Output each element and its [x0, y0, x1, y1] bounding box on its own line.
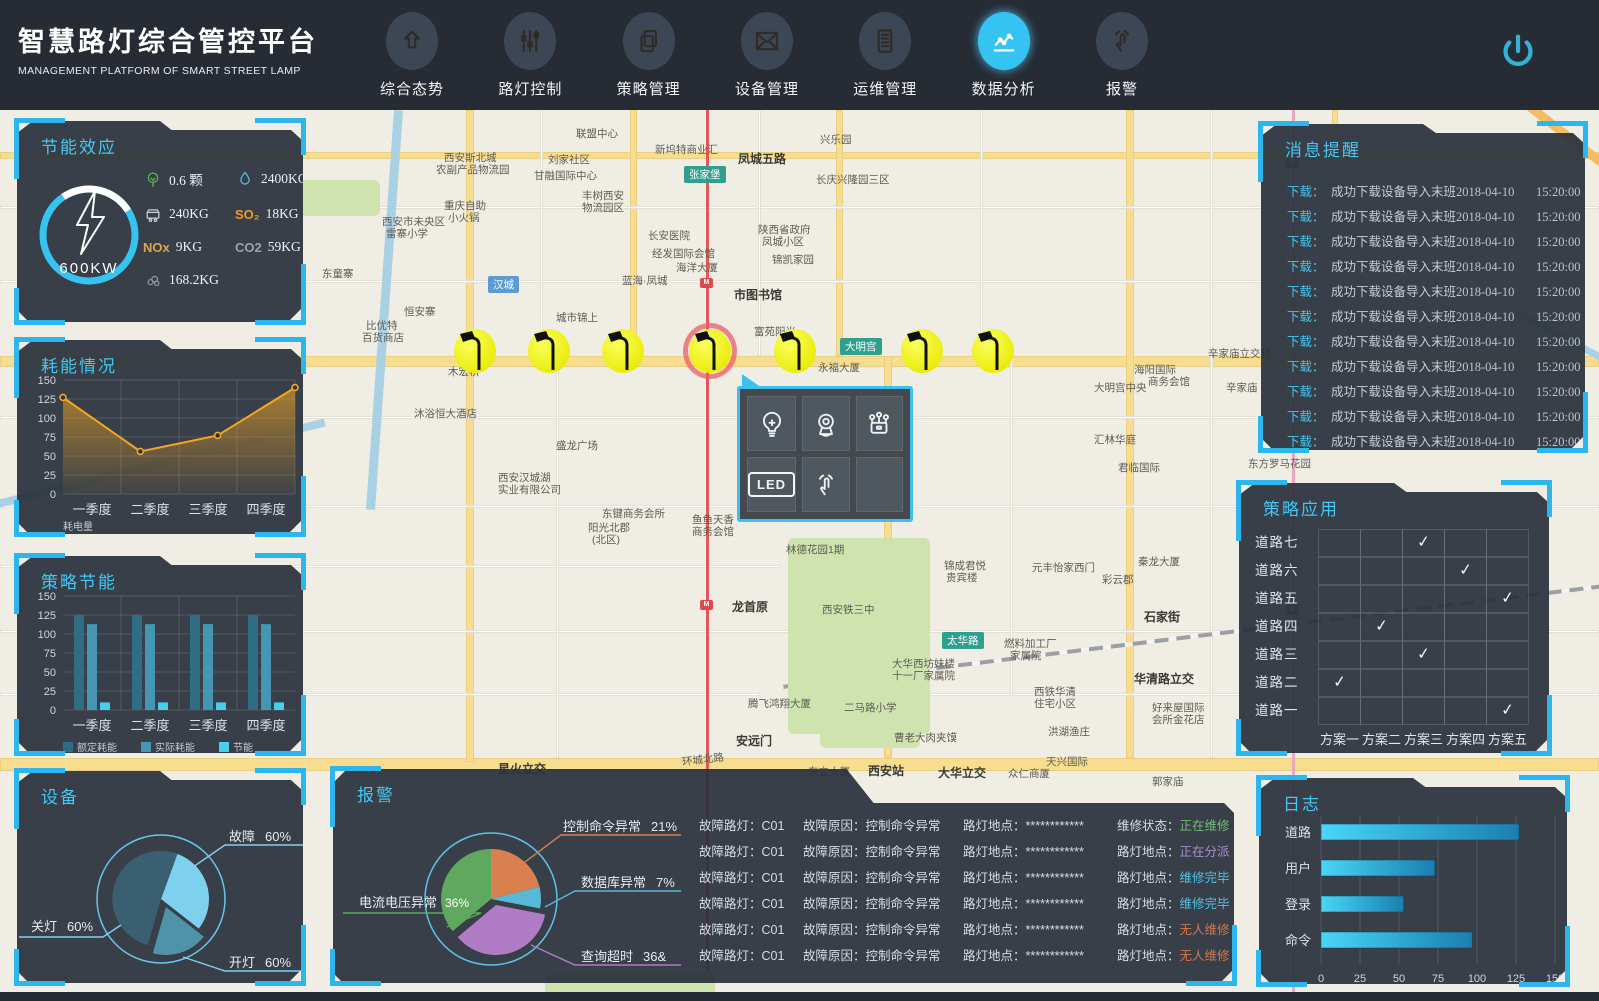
copy-icon — [623, 12, 675, 70]
svg-text:125: 125 — [1507, 973, 1525, 985]
map-road-badge: 太华路 — [942, 632, 984, 649]
strategy-cell[interactable] — [1486, 641, 1529, 669]
message-row: 下载： 成功下载设备导入末班 2018-04-10 15:20:00 — [1287, 305, 1575, 330]
street-lamp-icon — [971, 328, 1015, 374]
message-date: 2018-04-10 — [1456, 305, 1536, 330]
map-label: 君临国际 — [1118, 460, 1160, 475]
message-text: 成功下载设备导入末班 — [1331, 255, 1456, 280]
led-label: LED — [748, 472, 795, 497]
energy-stat: 240KG — [143, 204, 231, 224]
svg-text:50: 50 — [1393, 973, 1405, 985]
strategy-cell[interactable] — [1360, 585, 1403, 613]
alarm-row: 故障路灯：C01 故障原因：控制命令异常 路灯地点：************ 路… — [699, 865, 1226, 891]
panel-log: 日志 0255075100125150道路 用户 登录 命令 — [1256, 775, 1570, 987]
status-value: 无人维修 — [1180, 949, 1230, 963]
map-label: 彩云郡 — [1102, 572, 1134, 587]
lamp-location: 路灯地点：************ — [963, 813, 1117, 839]
map-label: 甘融国际中心 — [534, 168, 597, 183]
road-label: 道路四 — [1255, 613, 1319, 641]
message-text: 成功下载设备导入末班 — [1331, 230, 1456, 255]
alarm-row: 故障路灯：C01 故障原因：控制命令异常 路灯地点：************ 路… — [699, 891, 1226, 917]
strategy-cell[interactable] — [1444, 697, 1487, 725]
led-control-button[interactable]: LED — [747, 457, 796, 512]
svg-text:三季度: 三季度 — [188, 718, 227, 733]
app-header: 智慧路灯综合管控平台 MANAGEMENT PLATFORM OF SMART … — [0, 0, 1599, 110]
map-label: 龙首原 — [732, 598, 768, 615]
plan-label: 方案五 — [1486, 725, 1529, 753]
map-label: 商务会馆 — [692, 524, 734, 539]
message-date: 2018-04-10 — [1456, 430, 1536, 455]
stat-label: CO2 — [235, 240, 262, 255]
street-lamp-icon — [453, 328, 497, 374]
map-label: 蓝海·凤城 — [622, 273, 668, 288]
nav-item-chart-line[interactable]: 数据分析 — [954, 12, 1054, 99]
message-list: 下载： 成功下载设备导入末班 2018-04-10 15:20:00下载： 成功… — [1287, 180, 1575, 455]
road-label: 道路二 — [1255, 669, 1319, 697]
panel-title: 策略节能 — [41, 568, 117, 593]
message-text: 成功下载设备导入末班 — [1331, 430, 1456, 455]
status-value: 维修完毕 — [1180, 871, 1230, 885]
strategy-row: 道路五✓ — [1255, 585, 1529, 613]
panel-alarm: 报警 控制命令异常21% 数据库异常7% 查询超时36& 电流电压异常 36% … — [330, 766, 1237, 986]
sensor-icon — [864, 409, 894, 439]
panel-messages: 消息提醒 下载： 成功下载设备导入末班 2018-04-10 15:20:00下… — [1258, 121, 1588, 453]
fault-lamp: 故障路灯：C01 — [699, 865, 803, 891]
map-park — [300, 180, 380, 216]
tree-icon — [143, 169, 163, 189]
svg-text:100: 100 — [1468, 973, 1486, 985]
street-lamp-icon — [773, 328, 817, 374]
svg-text:25: 25 — [1354, 973, 1366, 985]
message-date: 2018-04-10 — [1456, 280, 1536, 305]
map-label: 长安医院 — [648, 228, 690, 243]
stat-value: 9KG — [176, 239, 202, 255]
strategy-cell[interactable]: ✓ — [1402, 641, 1445, 669]
map-label: 腾飞鸿翔大厦 — [748, 696, 811, 711]
nav-item-mail[interactable]: 设备管理 — [717, 12, 817, 99]
status-value: 无人维修 — [1180, 923, 1230, 937]
svg-text:125: 125 — [38, 610, 56, 622]
bulb-button[interactable] — [747, 396, 796, 451]
message-row: 下载： 成功下载设备导入末班 2018-04-10 15:20:00 — [1287, 280, 1575, 305]
metro-station-icon: M — [700, 600, 713, 610]
road-label: 道路七 — [1255, 529, 1319, 557]
map-road — [630, 110, 637, 356]
message-text: 成功下载设备导入末班 — [1331, 330, 1456, 355]
map-label: 实业有限公司 — [498, 482, 561, 497]
svg-text:登录: 登录 — [1285, 897, 1311, 912]
touch-button[interactable] — [802, 457, 850, 512]
message-text: 成功下载设备导入末班 — [1331, 205, 1456, 230]
check-icon: ✓ — [1457, 557, 1473, 584]
nav-item-arrow-up[interactable]: 综合态势 — [362, 12, 462, 99]
fault-reason: 故障原因：控制命令异常 — [803, 839, 963, 865]
street-lamp-marker-selected[interactable] — [688, 328, 732, 374]
repair-status: 维修状态：正在维修 — [1117, 813, 1230, 839]
message-row: 下载： 成功下载设备导入末班 2018-04-10 15:20:00 — [1287, 330, 1575, 355]
strategy-cell[interactable] — [1402, 669, 1445, 697]
stat-label: NOx — [143, 240, 170, 255]
sliders-icon — [515, 26, 545, 56]
stat-value: 18KG — [266, 206, 299, 222]
svg-text:命令: 命令 — [1285, 933, 1311, 948]
svg-text:100: 100 — [38, 413, 56, 425]
energy-stat: 168.2KG — [143, 270, 231, 290]
strategy-cell[interactable] — [1318, 697, 1361, 725]
lamp-location: 路灯地点：************ — [963, 891, 1117, 917]
map-label: 刘家社区 — [548, 152, 590, 167]
power-button[interactable] — [1495, 30, 1541, 76]
plan-label: 方案四 — [1444, 725, 1487, 753]
chart-line-icon — [978, 12, 1030, 70]
nav-label: 策略管理 — [599, 78, 699, 99]
svg-text:额定耗能: 额定耗能 — [77, 741, 117, 754]
message-type: 下载： — [1287, 255, 1331, 280]
map-label: 汇林华庭 — [1094, 432, 1136, 447]
map-road — [366, 110, 403, 510]
map-label: 海洋大厦 — [676, 260, 718, 275]
message-type: 下载： — [1287, 330, 1331, 355]
strategy-cell[interactable] — [1318, 585, 1361, 613]
strategy-cell[interactable] — [1486, 529, 1529, 557]
map-label: 洪湖渔庄 — [1048, 724, 1090, 739]
street-lamp-icon — [900, 328, 944, 374]
message-date: 2018-04-10 — [1456, 180, 1536, 205]
mail-icon — [741, 12, 793, 70]
map-label: 兴乐园 — [820, 132, 852, 147]
map-label: 新坞特商业汇 — [655, 142, 718, 157]
app-subtitle: MANAGEMENT PLATFORM OF SMART STREET LAMP — [18, 65, 318, 77]
map-road — [1210, 110, 1213, 758]
nav-label: 路灯控制 — [480, 78, 580, 99]
svg-text:数据库异常7%: 数据库异常7% — [581, 875, 675, 890]
log-bar-chart: 0255075100125150道路 用户 登录 命令 — [1259, 804, 1573, 995]
strategy-cell[interactable] — [1402, 585, 1445, 613]
message-type: 下载： — [1287, 380, 1331, 405]
strategy-cell[interactable] — [1402, 697, 1445, 725]
map-label: 永福大厦 — [818, 360, 860, 375]
strategy-cell[interactable]: ✓ — [1360, 613, 1403, 641]
street-lamp-marker[interactable] — [900, 328, 944, 374]
alarm-row: 故障路灯：C01 故障原因：控制命令异常 路灯地点：************ 路… — [699, 943, 1226, 969]
svg-text:四季度: 四季度 — [246, 718, 285, 733]
svg-text:四季度: 四季度 — [246, 502, 285, 517]
map-label: 十一厂家属院 — [892, 668, 955, 683]
svg-text:电流电压异常: 电流电压异常 — [359, 895, 437, 910]
message-type: 下载： — [1287, 180, 1331, 205]
fault-lamp: 故障路灯：C01 — [699, 839, 803, 865]
stat-value: 168.2KG — [169, 272, 219, 288]
nav-item-document[interactable]: 运维管理 — [835, 12, 935, 99]
nav-label: 综合态势 — [362, 78, 462, 99]
strategy-cell[interactable] — [1486, 613, 1529, 641]
street-lamp-icon — [601, 328, 645, 374]
svg-text:50: 50 — [44, 667, 56, 679]
svg-text:125: 125 — [38, 394, 56, 406]
message-type: 下载： — [1287, 305, 1331, 330]
road-label: 道路一 — [1255, 697, 1319, 725]
alarm-row: 故障路灯：C01 故障原因：控制命令异常 路灯地点：************ 路… — [699, 839, 1226, 865]
panel-strategy-saving: 策略节能 0255075100125150一季度二季度三季度四季度额定耗能实际耗… — [14, 553, 306, 756]
svg-text:0: 0 — [1318, 973, 1324, 985]
camera-button[interactable] — [802, 396, 850, 451]
strategy-cell[interactable] — [1402, 613, 1445, 641]
energy-stats: 0.6 颗2400KG240KGSO₂18KGNOx9KGCO259KG168.… — [143, 169, 297, 290]
map-label: 凤城五路 — [738, 150, 786, 167]
plan-label: 方案二 — [1360, 725, 1403, 753]
message-date: 2018-04-10 — [1456, 230, 1536, 255]
main-nav: 综合态势路灯控制策略管理设备管理运维管理数据分析报警 — [362, 12, 1172, 99]
svg-text:150: 150 — [1546, 973, 1564, 985]
svg-text:故障60%: 故障60% — [229, 829, 291, 844]
svg-text:耗电量: 耗电量 — [63, 520, 93, 533]
strategy-row: 道路一✓ — [1255, 697, 1529, 725]
map-label: 东童寨 — [322, 266, 354, 281]
energy-stat: SO₂18KG — [235, 204, 313, 224]
fault-lamp: 故障路灯：C01 — [699, 813, 803, 839]
map-label: 联盟中心 — [576, 126, 618, 141]
svg-text:查询超时36&: 查询超时36& — [581, 949, 666, 964]
strategy-cell[interactable] — [1318, 529, 1361, 557]
strategy-row: 道路二✓ — [1255, 669, 1529, 697]
nav-label: 数据分析 — [954, 78, 1054, 99]
chart-line-icon — [989, 26, 1019, 56]
fault-reason: 故障原因：控制命令异常 — [803, 917, 963, 943]
svg-text:50: 50 — [44, 451, 56, 463]
lightning-icon — [77, 191, 104, 254]
strategy-cell[interactable] — [1486, 669, 1529, 697]
strategy-row: 道路三✓ — [1255, 641, 1529, 669]
message-type: 下载： — [1287, 205, 1331, 230]
svg-text:75: 75 — [44, 648, 56, 660]
svg-text:25: 25 — [44, 686, 56, 698]
map-road-badge: 张家堡 — [684, 166, 726, 183]
map-label: 二马路小学 — [844, 700, 897, 715]
strategy-cell[interactable]: ✓ — [1402, 529, 1445, 557]
svg-text:道路: 道路 — [1285, 825, 1311, 840]
map-road-badge: 汉城 — [488, 276, 519, 293]
check-icon: ✓ — [1499, 585, 1515, 612]
map-label: 东方罗马花园 — [1248, 456, 1311, 471]
stat-value: 0.6 颗 — [169, 169, 203, 189]
map-label: 西安铁三中 — [822, 602, 875, 617]
message-date: 2018-04-10 — [1456, 355, 1536, 380]
strategy-cell[interactable] — [1444, 585, 1487, 613]
strategy-cell[interactable] — [1486, 557, 1529, 585]
panel-title: 耗能情况 — [41, 352, 117, 377]
fault-lamp: 故障路灯：C01 — [699, 917, 803, 943]
map-label: 经发国际会馆 — [652, 246, 715, 261]
svg-text:二季度: 二季度 — [130, 502, 169, 517]
arrow-up-icon — [397, 26, 427, 56]
check-icon: ✓ — [1415, 641, 1431, 668]
consumption-line-chart: 0255075100125150一季度二季度三季度四季度耗电量 — [17, 366, 309, 543]
lamp-location: 路灯地点：************ — [963, 943, 1117, 969]
street-lamp-marker[interactable] — [773, 328, 817, 374]
message-text: 成功下载设备导入末班 — [1331, 355, 1456, 380]
lamp-popup: LED — [737, 386, 913, 522]
energy-stat: NOx9KG — [143, 239, 231, 255]
strategy-cell[interactable] — [1318, 557, 1361, 585]
arrow-up-icon — [386, 12, 438, 70]
panel-title: 策略应用 — [1263, 495, 1339, 520]
touch-icon — [1107, 26, 1137, 56]
strategy-cell[interactable] — [1444, 529, 1487, 557]
strategy-cell[interactable] — [1360, 641, 1403, 669]
check-icon: ✓ — [1415, 529, 1431, 556]
fault-reason: 故障原因：控制命令异常 — [803, 865, 963, 891]
plan-label: 方案三 — [1402, 725, 1445, 753]
fault-reason: 故障原因：控制命令异常 — [803, 943, 963, 969]
message-type: 下载： — [1287, 230, 1331, 255]
svg-text:100: 100 — [38, 629, 56, 641]
panel-consumption: 耗能情况 0255075100125150一季度二季度三季度四季度耗电量 — [14, 337, 306, 537]
nav-label: 运维管理 — [835, 78, 935, 99]
svg-text:控制命令异常21%: 控制命令异常21% — [563, 819, 677, 834]
message-row: 下载： 成功下载设备导入末班 2018-04-10 15:20:00 — [1287, 255, 1575, 280]
document-icon — [859, 12, 911, 70]
stat-value: 59KG — [268, 239, 301, 255]
alarm-row: 故障路灯：C01 故障原因：控制命令异常 路灯地点：************ 路… — [699, 917, 1226, 943]
nav-item-touch[interactable]: 报警 — [1072, 12, 1172, 99]
map-label: 农副产品物流园 — [436, 162, 510, 177]
map-label: 小火锅 — [448, 210, 480, 225]
repair-status: 路灯地点：无人维修 — [1117, 943, 1230, 969]
message-row: 下载： 成功下载设备导入末班 2018-04-10 15:20:00 — [1287, 230, 1575, 255]
svg-text:二季度: 二季度 — [130, 718, 169, 733]
fault-lamp: 故障路灯：C01 — [699, 891, 803, 917]
alarm-pie-chart: 控制命令异常21% 数据库异常7% 查询超时36& 电流电压异常 36% — [341, 795, 701, 996]
street-lamp-marker[interactable] — [527, 328, 571, 374]
strategy-cell[interactable] — [1318, 613, 1361, 641]
strategy-cell[interactable] — [1402, 557, 1445, 585]
energy-stat: 2400KG — [235, 169, 313, 189]
panel-title: 设备 — [41, 783, 79, 808]
strategy-cell[interactable] — [1318, 641, 1361, 669]
street-lamp-marker[interactable] — [453, 328, 497, 374]
map-label: 长庆兴隆园三区 — [816, 172, 890, 187]
strategy-cell[interactable] — [1360, 529, 1403, 557]
map-road — [980, 110, 983, 356]
svg-text:25: 25 — [44, 470, 56, 482]
strategy-cell[interactable]: ✓ — [1444, 557, 1487, 585]
energy-gauge: 600KW — [21, 159, 161, 316]
map-label: 辛家庙 — [1226, 380, 1258, 395]
lamp-location: 路灯地点：************ — [963, 917, 1117, 943]
coal-cart-icon — [143, 204, 163, 224]
message-row: 下载： 成功下载设备导入末班 2018-04-10 15:20:00 — [1287, 430, 1575, 455]
message-row: 下载： 成功下载设备导入末班 2018-04-10 15:20:00 — [1287, 405, 1575, 430]
street-lamp-icon — [527, 328, 571, 374]
check-icon: ✓ — [1373, 613, 1389, 640]
svg-text:开灯60%: 开灯60% — [229, 955, 291, 970]
stat-value: 240KG — [169, 206, 209, 222]
strategy-saving-bar-chart: 0255075100125150一季度二季度三季度四季度额定耗能实际耗能节能 — [17, 582, 309, 763]
popup-pointer — [742, 374, 762, 388]
strategy-cell[interactable] — [1444, 641, 1487, 669]
repair-status: 路灯地点：维修完毕 — [1117, 891, 1230, 917]
power-icon — [1495, 30, 1541, 76]
svg-text:0: 0 — [50, 489, 56, 501]
message-text: 成功下载设备导入末班 — [1331, 180, 1456, 205]
strategy-row: 道路四✓ — [1255, 613, 1529, 641]
street-lamp-marker[interactable] — [971, 328, 1015, 374]
fault-reason: 故障原因：控制命令异常 — [803, 813, 963, 839]
panel-title: 报警 — [357, 781, 395, 806]
message-row: 下载： 成功下载设备导入末班 2018-04-10 15:20:00 — [1287, 380, 1575, 405]
map-label: 盛龙广场 — [556, 438, 598, 453]
strategy-cell[interactable]: ✓ — [1486, 585, 1529, 613]
svg-text:实际耗能: 实际耗能 — [155, 741, 195, 754]
nav-item-sliders[interactable]: 路灯控制 — [480, 12, 580, 99]
strategy-row: 道路六✓ — [1255, 557, 1529, 585]
strategy-cell[interactable]: ✓ — [1486, 697, 1529, 725]
app-logo: 智慧路灯综合管控平台 MANAGEMENT PLATFORM OF SMART … — [18, 20, 318, 77]
empty-cell — [856, 457, 904, 512]
road-label: 道路六 — [1255, 557, 1319, 585]
map-label: 家属院 — [1010, 648, 1042, 663]
svg-text:节能: 节能 — [233, 741, 253, 754]
mail-icon — [752, 26, 782, 56]
map-label: 雷寨小学 — [386, 226, 428, 241]
energy-stat: 0.6 颗 — [143, 169, 231, 189]
message-date: 2018-04-10 — [1456, 380, 1536, 405]
sliders-icon — [504, 12, 556, 70]
map-label: 恒安寨 — [404, 304, 436, 319]
panel-title: 消息提醒 — [1285, 136, 1361, 161]
message-row: 下载： 成功下载设备导入末班 2018-04-10 15:20:00 — [1287, 355, 1575, 380]
strategy-cell[interactable] — [1444, 669, 1487, 697]
strategy-apply-grid: 道路七✓道路六✓道路五✓道路四✓道路三✓道路二✓道路一✓方案一方案二方案三方案四… — [1255, 529, 1529, 753]
svg-text:关灯60%: 关灯60% — [31, 919, 93, 934]
message-type: 下载： — [1287, 430, 1331, 455]
map-label: 市图书馆 — [734, 286, 782, 303]
check-icon: ✓ — [1499, 697, 1515, 724]
map-label: 住宅小区 — [1034, 696, 1076, 711]
strategy-cell[interactable] — [1360, 697, 1403, 725]
nav-label: 设备管理 — [717, 78, 817, 99]
svg-text:三季度: 三季度 — [188, 502, 227, 517]
message-text: 成功下载设备导入末班 — [1331, 405, 1456, 430]
map-label: 东键商务会所 — [602, 506, 665, 521]
map-label: 曹老大肉夹馍 — [894, 730, 957, 745]
map-label: 安远门 — [736, 732, 772, 749]
message-text: 成功下载设备导入末班 — [1331, 280, 1456, 305]
status-value: 维修完毕 — [1180, 897, 1230, 911]
map-label: 沐浴恒大酒店 — [414, 406, 477, 421]
message-date: 2018-04-10 — [1456, 405, 1536, 430]
message-date: 2018-04-10 — [1456, 255, 1536, 280]
strategy-cell[interactable] — [1360, 557, 1403, 585]
road-label: 道路五 — [1255, 585, 1319, 613]
map-label: 元丰怡家西门 — [1032, 560, 1095, 575]
message-row: 下载： 成功下载设备导入末班 2018-04-10 15:20:00 — [1287, 180, 1575, 205]
camera-icon — [811, 409, 841, 439]
strategy-cell[interactable] — [1360, 669, 1403, 697]
map-road — [556, 356, 559, 758]
street-lamp-marker[interactable] — [601, 328, 645, 374]
strategy-cell[interactable]: ✓ — [1318, 669, 1361, 697]
map-label: 百货商店 — [362, 330, 404, 345]
nav-item-copy[interactable]: 策略管理 — [599, 12, 699, 99]
strategy-cell[interactable] — [1444, 613, 1487, 641]
svg-text:用户: 用户 — [1285, 861, 1311, 876]
message-date: 2018-04-10 — [1456, 330, 1536, 355]
smoke-icon — [143, 270, 163, 290]
sensor-button[interactable] — [856, 396, 904, 451]
panel-device: 设备 故障60% 关灯60% 开灯60% — [14, 768, 306, 986]
map-label: (北区) — [592, 532, 620, 547]
